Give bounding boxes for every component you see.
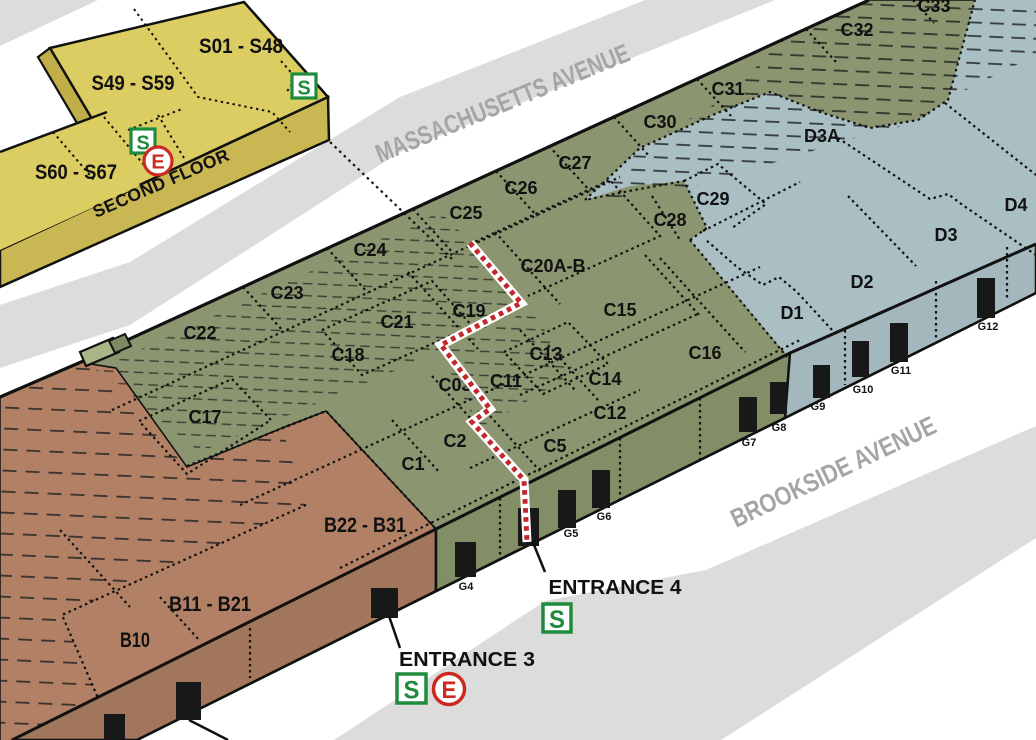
svg-text:D4: D4 bbox=[1004, 195, 1027, 215]
svg-text:G4: G4 bbox=[459, 581, 475, 593]
svg-text:B10: B10 bbox=[120, 629, 150, 652]
svg-text:C5: C5 bbox=[543, 436, 566, 456]
svg-text:G6: G6 bbox=[597, 511, 612, 523]
svg-text:S60 - S67: S60 - S67 bbox=[35, 161, 117, 184]
svg-text:C24: C24 bbox=[353, 240, 386, 260]
svg-text:G7: G7 bbox=[742, 437, 757, 449]
svg-text:C18: C18 bbox=[331, 345, 364, 365]
svg-text:C1: C1 bbox=[401, 454, 424, 474]
svg-text:G10: G10 bbox=[853, 384, 874, 396]
svg-text:G8: G8 bbox=[772, 422, 787, 434]
svg-text:C33: C33 bbox=[917, 0, 950, 16]
svg-text:C2: C2 bbox=[443, 431, 466, 451]
svg-text:C16: C16 bbox=[688, 343, 721, 363]
svg-text:E: E bbox=[442, 677, 457, 704]
svg-text:C29: C29 bbox=[696, 189, 729, 209]
svg-text:E: E bbox=[151, 152, 164, 174]
svg-text:S49 - S59: S49 - S59 bbox=[92, 72, 175, 95]
svg-text:C27: C27 bbox=[558, 153, 591, 173]
svg-text:C26: C26 bbox=[504, 178, 537, 198]
svg-text:C28: C28 bbox=[653, 210, 686, 230]
svg-text:ENTRANCE 4: ENTRANCE 4 bbox=[549, 577, 683, 599]
svg-text:C25: C25 bbox=[449, 203, 482, 223]
svg-text:C14: C14 bbox=[588, 369, 621, 389]
svg-text:C31: C31 bbox=[711, 79, 744, 99]
svg-text:D3A: D3A bbox=[804, 126, 840, 146]
svg-text:C20A-B: C20A-B bbox=[520, 256, 585, 276]
svg-text:C19: C19 bbox=[452, 301, 485, 321]
svg-text:C12: C12 bbox=[593, 403, 626, 423]
svg-text:D1: D1 bbox=[780, 303, 803, 323]
svg-text:G5: G5 bbox=[564, 528, 579, 540]
svg-text:S: S bbox=[549, 606, 565, 634]
svg-text:B11 - B21: B11 - B21 bbox=[169, 593, 251, 616]
svg-text:B22 - B31: B22 - B31 bbox=[324, 514, 406, 537]
svg-text:G12: G12 bbox=[978, 321, 999, 333]
svg-text:C30: C30 bbox=[643, 112, 676, 132]
svg-text:C32: C32 bbox=[840, 20, 873, 40]
svg-text:G11: G11 bbox=[891, 365, 911, 377]
svg-text:C11: C11 bbox=[490, 371, 522, 391]
svg-text:C21: C21 bbox=[380, 312, 413, 332]
svg-text:S: S bbox=[297, 78, 310, 100]
svg-text:ENTRANCE 3: ENTRANCE 3 bbox=[399, 649, 535, 671]
svg-text:S01 - S48: S01 - S48 bbox=[199, 35, 283, 58]
svg-text:C13: C13 bbox=[529, 344, 562, 364]
svg-text:C22: C22 bbox=[183, 323, 216, 343]
svg-text:D3: D3 bbox=[934, 225, 957, 245]
svg-text:C23: C23 bbox=[270, 283, 303, 303]
svg-text:C17: C17 bbox=[188, 407, 221, 427]
svg-text:G9: G9 bbox=[811, 401, 826, 413]
svg-text:S: S bbox=[404, 677, 420, 705]
svg-text:C15: C15 bbox=[603, 300, 636, 320]
svg-text:D2: D2 bbox=[850, 272, 873, 292]
